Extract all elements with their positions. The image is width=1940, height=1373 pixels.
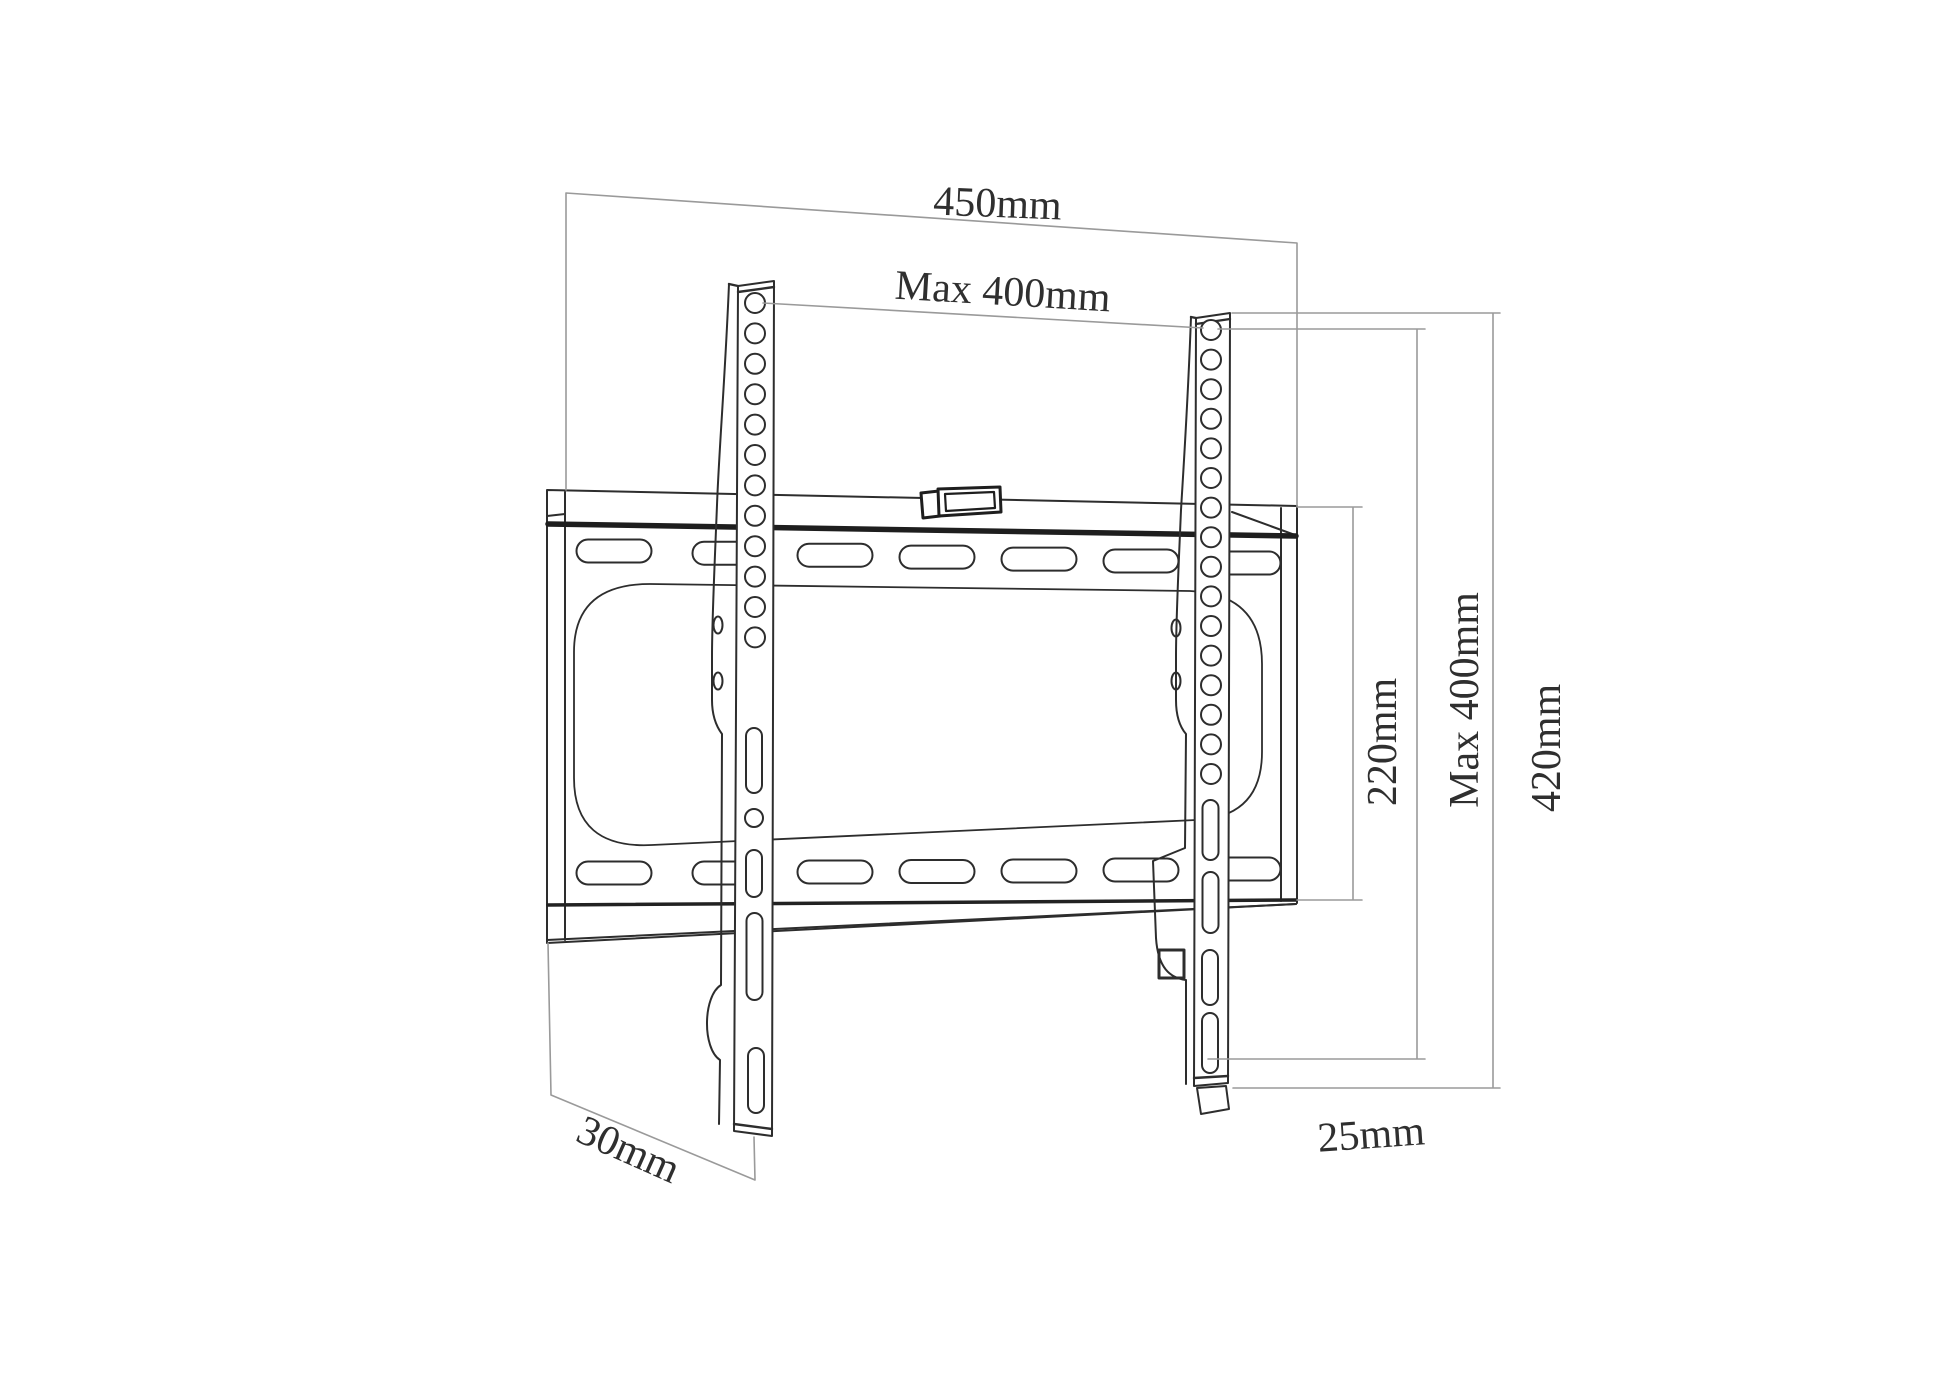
plate-slot-row-top <box>577 540 1281 575</box>
dim-label-220mm: 220mm <box>1360 678 1406 807</box>
plate-slot-row-bottom <box>577 858 1281 885</box>
lock-clip <box>921 487 1001 518</box>
dim-label-max400-height: Max 400mm <box>1442 592 1488 808</box>
left-rail-slots <box>745 728 764 1113</box>
left-rail-flange <box>707 284 729 1124</box>
dim-label-25mm: 25mm <box>1316 1108 1427 1161</box>
plate-upper-seam <box>548 524 1296 536</box>
dim-220-lines <box>1297 507 1362 900</box>
dim-450-lines <box>566 193 1297 506</box>
tv-mount-technical-diagram: 450mm Max 400mm 220mm Max 400mm 420mm 25… <box>0 0 1940 1373</box>
right-rail-bottom-flap <box>1197 1086 1229 1114</box>
plate-left-fold <box>547 492 565 940</box>
left-rail-flange-holes <box>714 617 723 690</box>
left-rail <box>707 281 774 1136</box>
plate-bottom-lip <box>547 904 1296 940</box>
plate-cutout <box>574 584 1262 845</box>
left-rail-face <box>734 281 774 1136</box>
right-rail <box>1153 313 1230 1114</box>
dim-label-420mm: 420mm <box>1524 684 1570 813</box>
dimension-lines <box>548 193 1500 1180</box>
dimension-labels: 450mm Max 400mm 220mm Max 400mm 420mm 25… <box>570 179 1570 1194</box>
plate-bottom-edge <box>548 900 1296 905</box>
dim-label-30mm: 30mm <box>570 1107 687 1193</box>
dim-label-450mm: 450mm <box>932 179 1062 230</box>
lock-clip-inner <box>945 492 995 511</box>
wall-plate <box>547 490 1297 943</box>
